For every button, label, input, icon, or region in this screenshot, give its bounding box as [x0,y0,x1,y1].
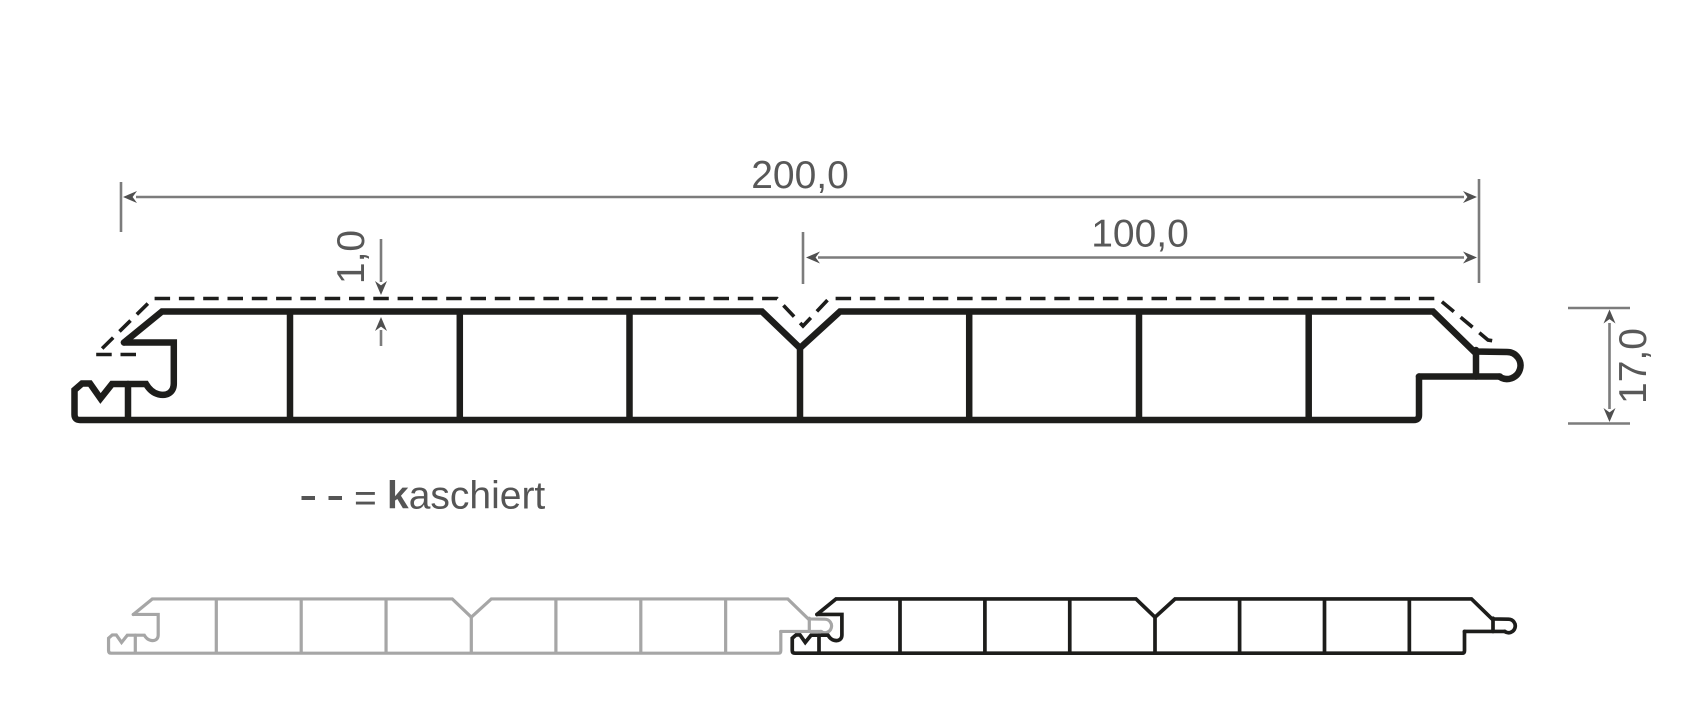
svg-text:kaschiert: kaschiert [387,475,545,518]
svg-text:=: = [354,477,377,520]
svg-text:200,0: 200,0 [751,154,849,197]
svg-text:100,0: 100,0 [1091,213,1189,256]
svg-text:17,0: 17,0 [1612,328,1655,404]
svg-text:1,0: 1,0 [330,230,373,284]
